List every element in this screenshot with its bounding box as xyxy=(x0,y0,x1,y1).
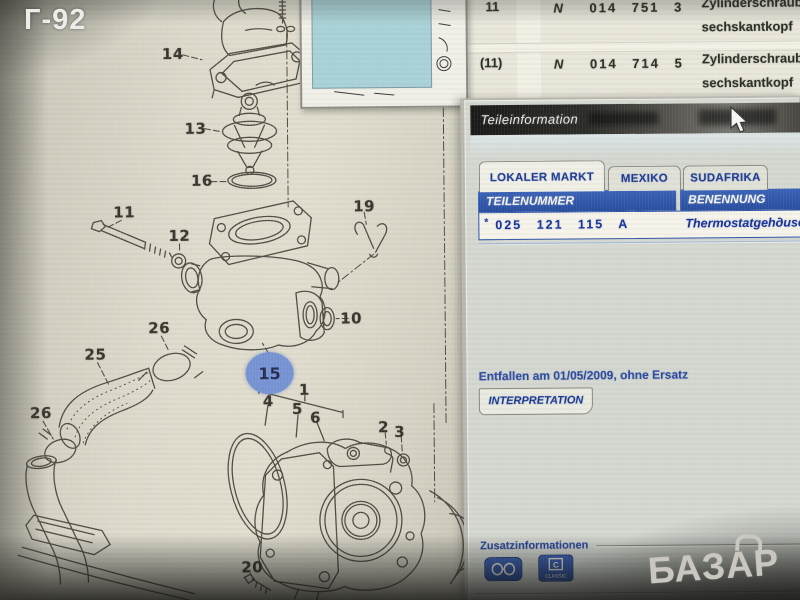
pos-number: 11 xyxy=(485,0,499,14)
callout-1[interactable]: 1 xyxy=(299,381,310,399)
callout-11[interactable]: 11 xyxy=(113,203,135,221)
mouse-cursor-icon xyxy=(728,105,750,135)
tab-lokaler-markt[interactable]: LOKALER MARKT xyxy=(479,160,605,192)
window-title: Teileinformation xyxy=(480,111,578,127)
callout-2[interactable]: 2 xyxy=(378,418,389,436)
callout-15-highlighted[interactable]: 15 xyxy=(245,352,293,394)
part-desc-1: Zylinderschraub xyxy=(702,50,800,66)
table-bottom-line xyxy=(479,240,800,244)
teileinformation-window: Teileinformation LOKALER MARKT MEXIKO SU… xyxy=(460,95,800,600)
glasses-icon[interactable] xyxy=(484,557,522,581)
callout-20[interactable]: 20 xyxy=(241,558,263,576)
tab-label: LOKALER MARKT xyxy=(490,171,594,184)
zusatzinformationen-label: Zusatzinformationen xyxy=(480,539,588,552)
part-desc-2: sechskantkopf xyxy=(702,19,793,35)
window-body: LOKALER MARKT MEXIKO SUDAFRIKA TEILENUMM… xyxy=(471,156,800,600)
background-parts-list: 11 N 014 751 3 Zylinderschraub sechskant… xyxy=(461,0,800,101)
column-header-benennung: BENENNUNG xyxy=(680,188,800,210)
tab-sudafrika[interactable]: SUDAFRIKA xyxy=(683,165,768,191)
callout-6[interactable]: 6 xyxy=(310,409,321,427)
callout-3[interactable]: 3 xyxy=(394,423,405,441)
classic-icon-label: CLASSIC xyxy=(545,574,567,580)
titlebar-smudge xyxy=(588,112,658,126)
discontinued-note: Entfallen am 01/05/2009, ohne Ersatz xyxy=(479,367,689,383)
interpretation-button[interactable]: INTERPRETATION xyxy=(479,387,593,415)
pos-number: (11) xyxy=(480,55,503,70)
callout-10[interactable]: 10 xyxy=(340,309,362,327)
row-part-name: Thermostatgehдuse xyxy=(685,215,800,230)
callout-26b[interactable]: 26 xyxy=(30,404,52,422)
window-bottom-line xyxy=(475,590,800,594)
part-desc-1: Zylinderschraub xyxy=(701,0,800,10)
bag-handle-icon xyxy=(735,534,763,552)
std-part-flag: N xyxy=(553,1,563,16)
screen-content: 14 13 16 11 12 19 10 26 25 26 15 1 4 5 6… xyxy=(0,0,800,600)
thumbnail-viewport xyxy=(311,0,432,89)
part-desc-2: sechskantkopf xyxy=(702,75,793,91)
callout-16[interactable]: 16 xyxy=(191,172,213,190)
callout-26a[interactable]: 26 xyxy=(148,319,170,337)
row-marker: * xyxy=(484,217,488,228)
callout-25[interactable]: 25 xyxy=(84,346,106,364)
svg-text:C: C xyxy=(553,561,559,570)
callout-13[interactable]: 13 xyxy=(184,120,206,138)
tab-label: MEXIKO xyxy=(621,173,668,185)
std-part-flag: N xyxy=(554,57,564,72)
callout-12[interactable]: 12 xyxy=(168,227,190,245)
part-number: 014 751 3 xyxy=(589,0,683,15)
part-number: 014 714 5 xyxy=(590,56,684,72)
callout-14[interactable]: 14 xyxy=(162,45,184,63)
tab-label: SUDAFRIKA xyxy=(690,172,761,185)
screen-photo: 14 13 16 11 12 19 10 26 25 26 15 1 4 5 6… xyxy=(0,0,800,600)
diagram-thumbnail-navigator[interactable] xyxy=(299,0,468,109)
window-toolbar-band xyxy=(471,132,800,159)
classic-icon[interactable]: C CLASSIC xyxy=(538,554,573,581)
row-part-number: 025 121 115 A xyxy=(495,217,629,232)
callout-4[interactable]: 4 xyxy=(263,392,274,410)
photo-corner-label: Г-92 xyxy=(24,4,86,37)
tab-mexiko[interactable]: MEXIKO xyxy=(608,166,681,192)
callout-5[interactable]: 5 xyxy=(292,400,303,418)
window-titlebar[interactable]: Teileinformation xyxy=(470,102,800,135)
callout-19[interactable]: 19 xyxy=(353,197,375,215)
